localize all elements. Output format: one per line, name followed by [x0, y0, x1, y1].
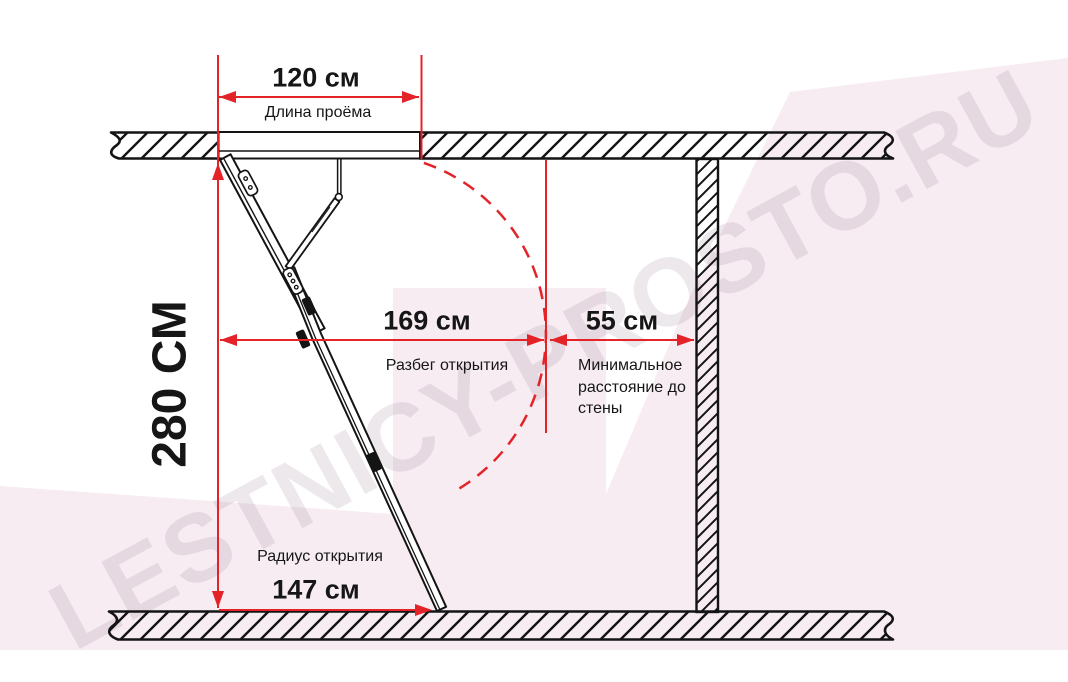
wall-column: [697, 159, 719, 612]
hatch-opening: [219, 132, 421, 159]
dim-height-value: 280 СМ: [143, 300, 198, 467]
dim-run-value: 169 см: [383, 306, 471, 337]
dim-wall-label: Минимальное расстояние до стены: [578, 355, 698, 420]
dimension-arrowheads: [212, 91, 694, 616]
attic-ladder-dimensions-diagram: LESTNICY-PROSTO.RU: [0, 0, 1068, 682]
dim-radius-label: Радиус открытия: [257, 548, 383, 566]
dim-wall-value: 55 см: [586, 306, 659, 337]
gas-strut: [286, 159, 343, 270]
dim-run-label: Разбег открытия: [386, 357, 508, 375]
floor-slab: [109, 612, 893, 640]
dim-opening-length-label: Длина проёма: [265, 104, 372, 122]
folding-ladder: [220, 154, 446, 611]
dim-opening-length-value: 120 см: [272, 63, 360, 94]
dim-radius-value: 147 см: [272, 575, 360, 606]
